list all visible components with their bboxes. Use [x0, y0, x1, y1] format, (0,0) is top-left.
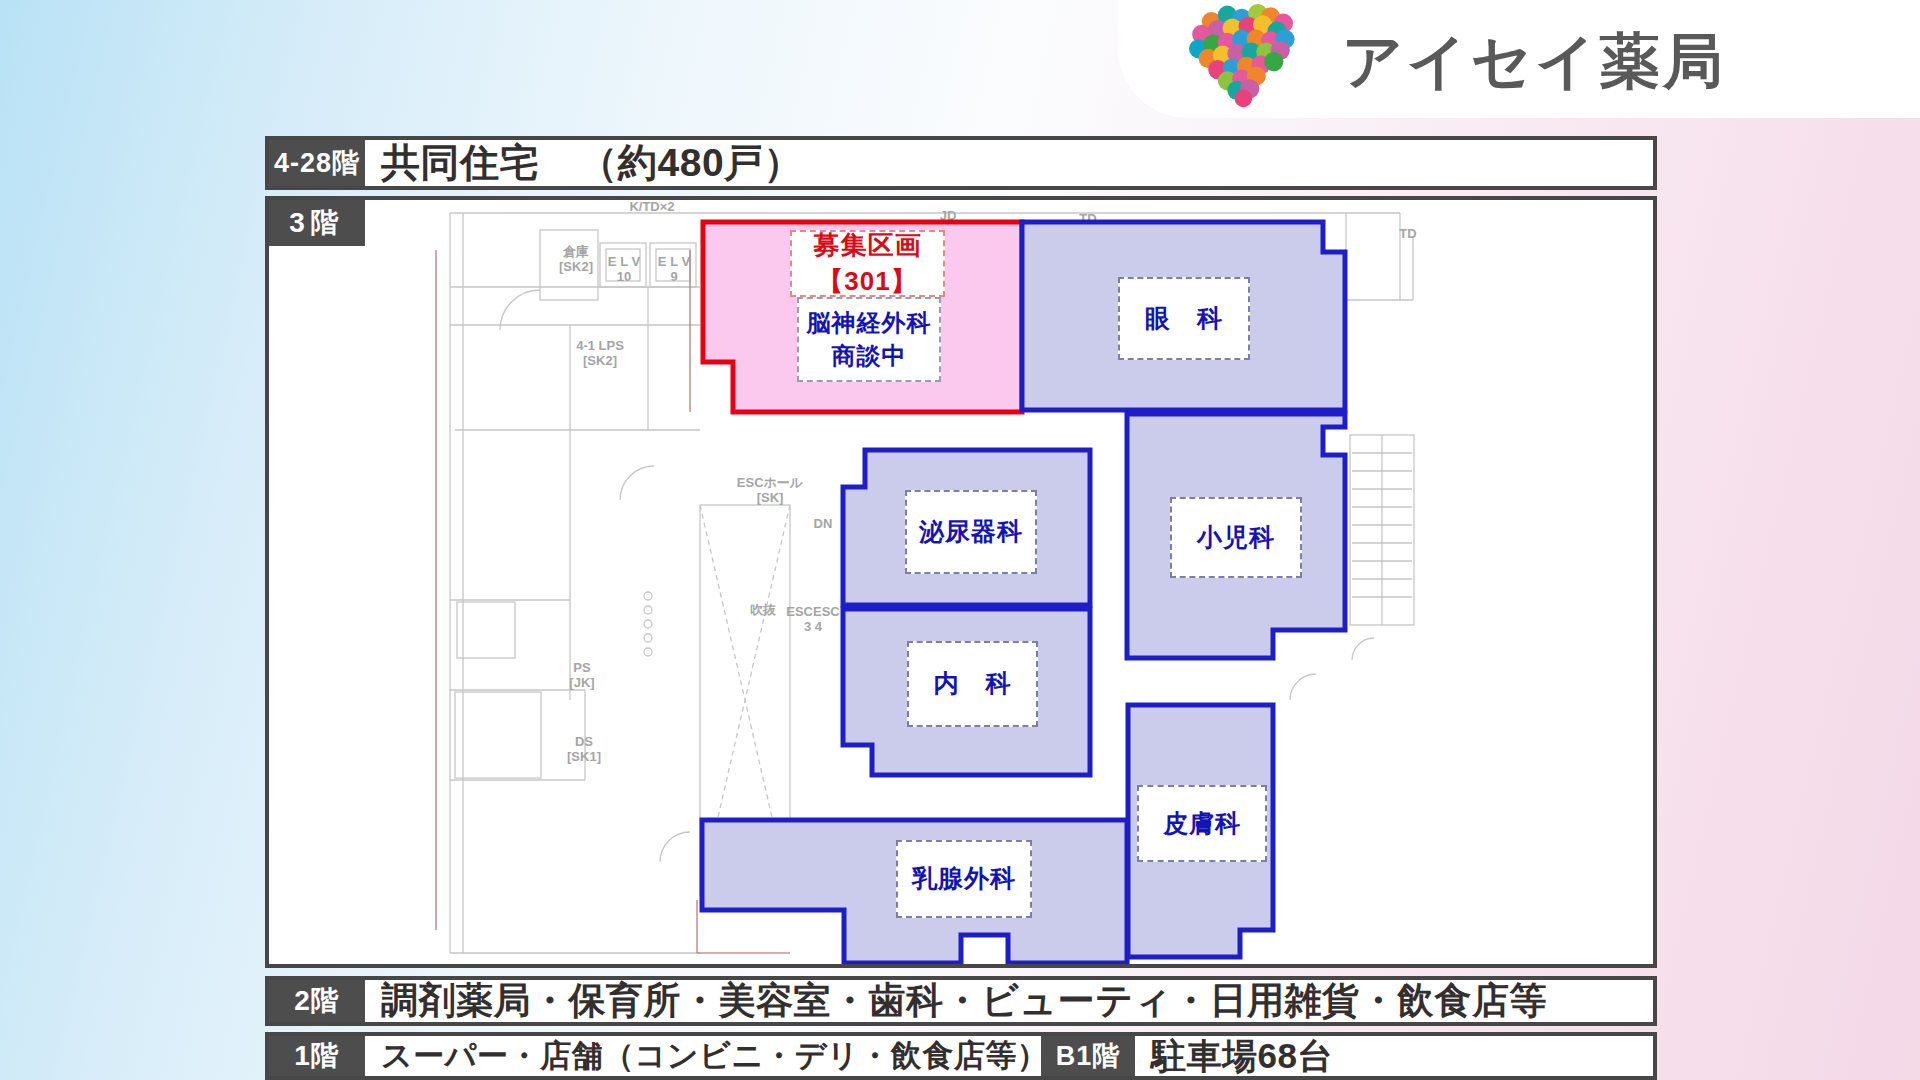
svg-text:E L V: E L V: [608, 254, 641, 269]
floor2-description: 調剤薬局・保育所・美容室・歯科・ビューティ・日用雑貨・飲食店等: [365, 980, 1547, 1022]
floor2-badge: 2階: [269, 980, 365, 1022]
row-residential-floors: 4-28階 共同住宅 （約480戸）: [265, 136, 1657, 190]
svg-text:[SK2]: [SK2]: [559, 259, 593, 274]
vacancy-status-box: 脳神経外科 商談中: [797, 297, 941, 382]
basement-description: 駐車場68台: [1135, 1036, 1653, 1076]
label-internal-medicine: 内 科: [907, 641, 1038, 727]
svg-text:[SK2]: [SK2]: [583, 353, 617, 368]
row-floor1: 1階 スーパー・店舗（コンビニ・デリ・飲食店等） B1階 駐車場68台: [265, 1032, 1657, 1080]
vacancy-title-line2: 【301】: [817, 264, 917, 299]
label-dermatology: 皮膚科: [1137, 785, 1267, 862]
floor-range-badge: 4-28階: [269, 140, 365, 186]
vacancy-title-line1: 募集区画: [814, 228, 922, 263]
svg-text:4-1 LPS: 4-1 LPS: [576, 338, 624, 353]
svg-text:10: 10: [617, 269, 631, 284]
vacancy-title-box: 募集区画 【301】: [790, 230, 945, 297]
vacancy-status: 商談中: [832, 340, 907, 372]
svg-text:DS: DS: [575, 734, 593, 749]
svg-text:K/TD×2: K/TD×2: [629, 200, 674, 214]
svg-text:[SK1]: [SK1]: [567, 749, 601, 764]
floor-3-badge: 3階: [269, 200, 365, 246]
flyer-page: { "logo": { "text": "アイセイ薬局", "palette":…: [0, 0, 1920, 1080]
svg-text:ESCホール: ESCホール: [737, 475, 804, 490]
label-ophthalmology: 眼 科: [1118, 277, 1250, 360]
svg-text:PS: PS: [573, 660, 591, 675]
svg-text:ESCESC: ESCESC: [786, 604, 840, 619]
floor1-badge: 1階: [269, 1036, 365, 1076]
svg-text:吹抜: 吹抜: [750, 602, 777, 617]
label-urology: 泌尿器科: [905, 490, 1037, 574]
row-floor2: 2階 調剤薬局・保育所・美容室・歯科・ビューティ・日用雑貨・飲食店等: [265, 976, 1657, 1026]
company-name: アイセイ薬局: [1342, 22, 1726, 103]
basement-badge: B1階: [1041, 1036, 1135, 1076]
heart-dots-logo-icon: [1150, 4, 1332, 108]
residential-description: 共同住宅 （約480戸）: [365, 140, 803, 186]
svg-text:9: 9: [670, 269, 677, 284]
svg-text:[JK]: [JK]: [569, 675, 594, 690]
svg-text:3 4: 3 4: [804, 619, 823, 634]
floor1-description: スーパー・店舗（コンビニ・デリ・飲食店等）: [365, 1036, 1041, 1076]
svg-text:E L V: E L V: [658, 254, 691, 269]
vacancy-tenant: 脳神経外科: [807, 307, 932, 339]
label-pediatrics: 小児科: [1170, 497, 1302, 578]
svg-text:TD: TD: [1399, 226, 1416, 241]
svg-text:DN: DN: [814, 516, 833, 531]
svg-text:倉庫: 倉庫: [562, 244, 589, 259]
label-breast-surgery: 乳腺外科: [896, 840, 1032, 918]
svg-text:[SK]: [SK]: [757, 490, 784, 505]
